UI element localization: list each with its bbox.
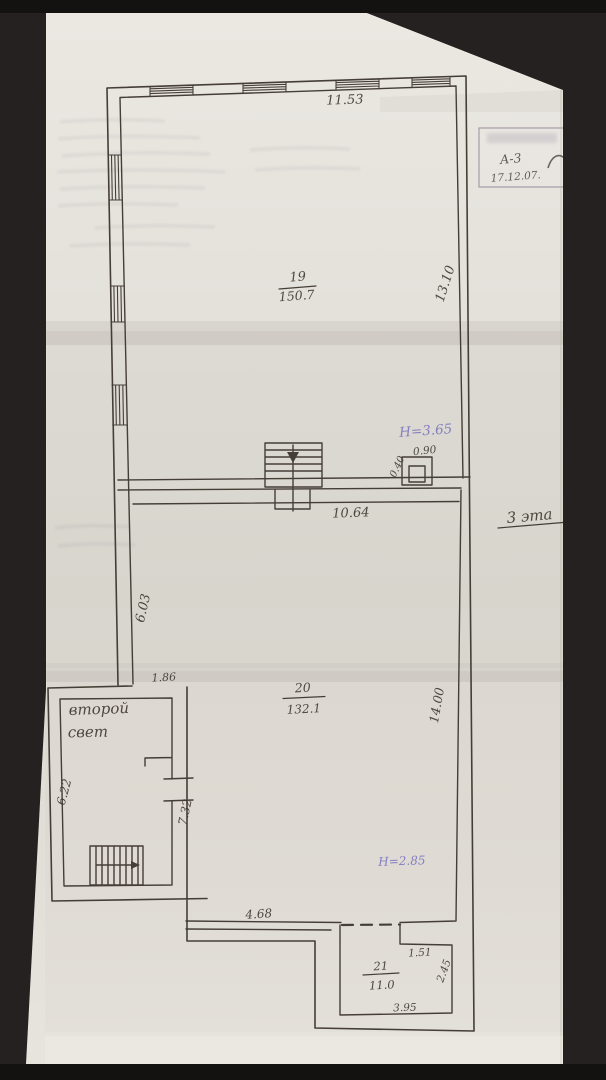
dim-top-width: 11.53	[326, 92, 364, 108]
room19-number: 19	[289, 269, 307, 285]
dim-bottom-left: 4.68	[244, 906, 273, 922]
stamp-code: А-3	[498, 150, 522, 167]
dark-bottom-bar	[0, 1064, 606, 1080]
dark-top-bar	[0, 0, 606, 13]
dashed-opening	[342, 925, 400, 926]
room20-area: 132.1	[286, 701, 321, 717]
dim-opening: 1.86	[151, 670, 176, 684]
seam-low-a	[45, 663, 563, 671]
stamp-faint-print	[487, 133, 557, 143]
room21-area: 11.0	[369, 977, 395, 992]
seam-mid-b	[45, 331, 563, 345]
date-stamp: А-3 17.12.07.	[479, 128, 575, 187]
second-light-label-1: второй	[68, 699, 129, 719]
floor-plan-svg: 11.53 13.10 19 150.7 Н=3.65 0.90 0.40 10…	[0, 0, 606, 1080]
room19-area: 150.7	[278, 287, 315, 304]
note-height-lower: Н=2.85	[377, 853, 426, 869]
tone-low	[45, 682, 563, 1032]
tone-bottom	[45, 1036, 563, 1064]
dim-inner-top: 10.64	[332, 505, 370, 521]
second-light-label-2: свет	[68, 723, 109, 742]
dim-duct-width: 0.90	[412, 444, 437, 458]
dim-nook-top: 1.51	[408, 946, 432, 959]
dim-nook-bottom: 3.95	[393, 1002, 417, 1015]
room20-number: 20	[293, 680, 311, 696]
scanned-floor-plan-photo: 11.53 13.10 19 150.7 Н=3.65 0.90 0.40 10…	[0, 0, 606, 1080]
room21-number: 21	[372, 959, 388, 974]
